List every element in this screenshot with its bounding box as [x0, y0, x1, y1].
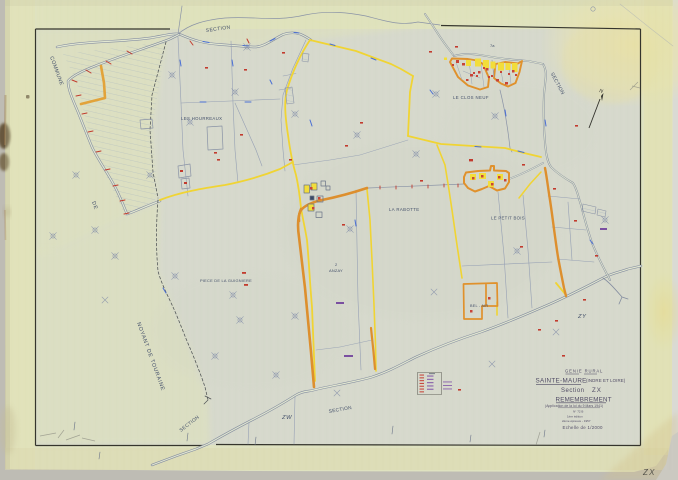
- svg-text:ZY: ZY: [577, 314, 587, 320]
- svg-text:7a: 7a: [490, 43, 495, 48]
- svg-text:2ème épreuve - 1957: 2ème épreuve - 1957: [562, 419, 591, 423]
- svg-text:PIECE DE LA GUIGNIERE: PIECE DE LA GUIGNIERE: [200, 278, 252, 283]
- svg-text:(INDRE ET LOIRE): (INDRE ET LOIRE): [586, 378, 626, 383]
- svg-text:ZX: ZX: [642, 468, 656, 477]
- svg-text:BEL - AIR: BEL - AIR: [470, 304, 488, 308]
- svg-text:GENIE RURAL: GENIE RURAL: [565, 369, 603, 374]
- svg-text:Section: Section: [561, 388, 585, 394]
- svg-text:ZW: ZW: [281, 415, 292, 421]
- svg-text:Echelle de 1/2000: Echelle de 1/2000: [563, 425, 604, 430]
- svg-text:REMEMBREMENT: REMEMBREMENT: [556, 397, 612, 404]
- svg-text:LES HOURREAUX: LES HOURREAUX: [181, 116, 222, 121]
- svg-text:N° 72 B: N° 72 B: [573, 410, 583, 414]
- svg-text:ZX: ZX: [592, 387, 602, 394]
- svg-text:SAINTE-MAURE: SAINTE-MAURE: [536, 378, 587, 385]
- svg-text:LE PETIT BOIS: LE PETIT BOIS: [491, 216, 525, 221]
- svg-text:ANZAY: ANZAY: [329, 268, 343, 273]
- svg-text:1ère édition: 1ère édition: [567, 415, 583, 419]
- svg-text:LE CLOS NEUF: LE CLOS NEUF: [453, 95, 489, 100]
- svg-text:(Application de la loi du: (Application de la loi du 9 Mars 1941): [545, 404, 603, 408]
- svg-text:LA RABOTTE: LA RABOTTE: [389, 207, 420, 212]
